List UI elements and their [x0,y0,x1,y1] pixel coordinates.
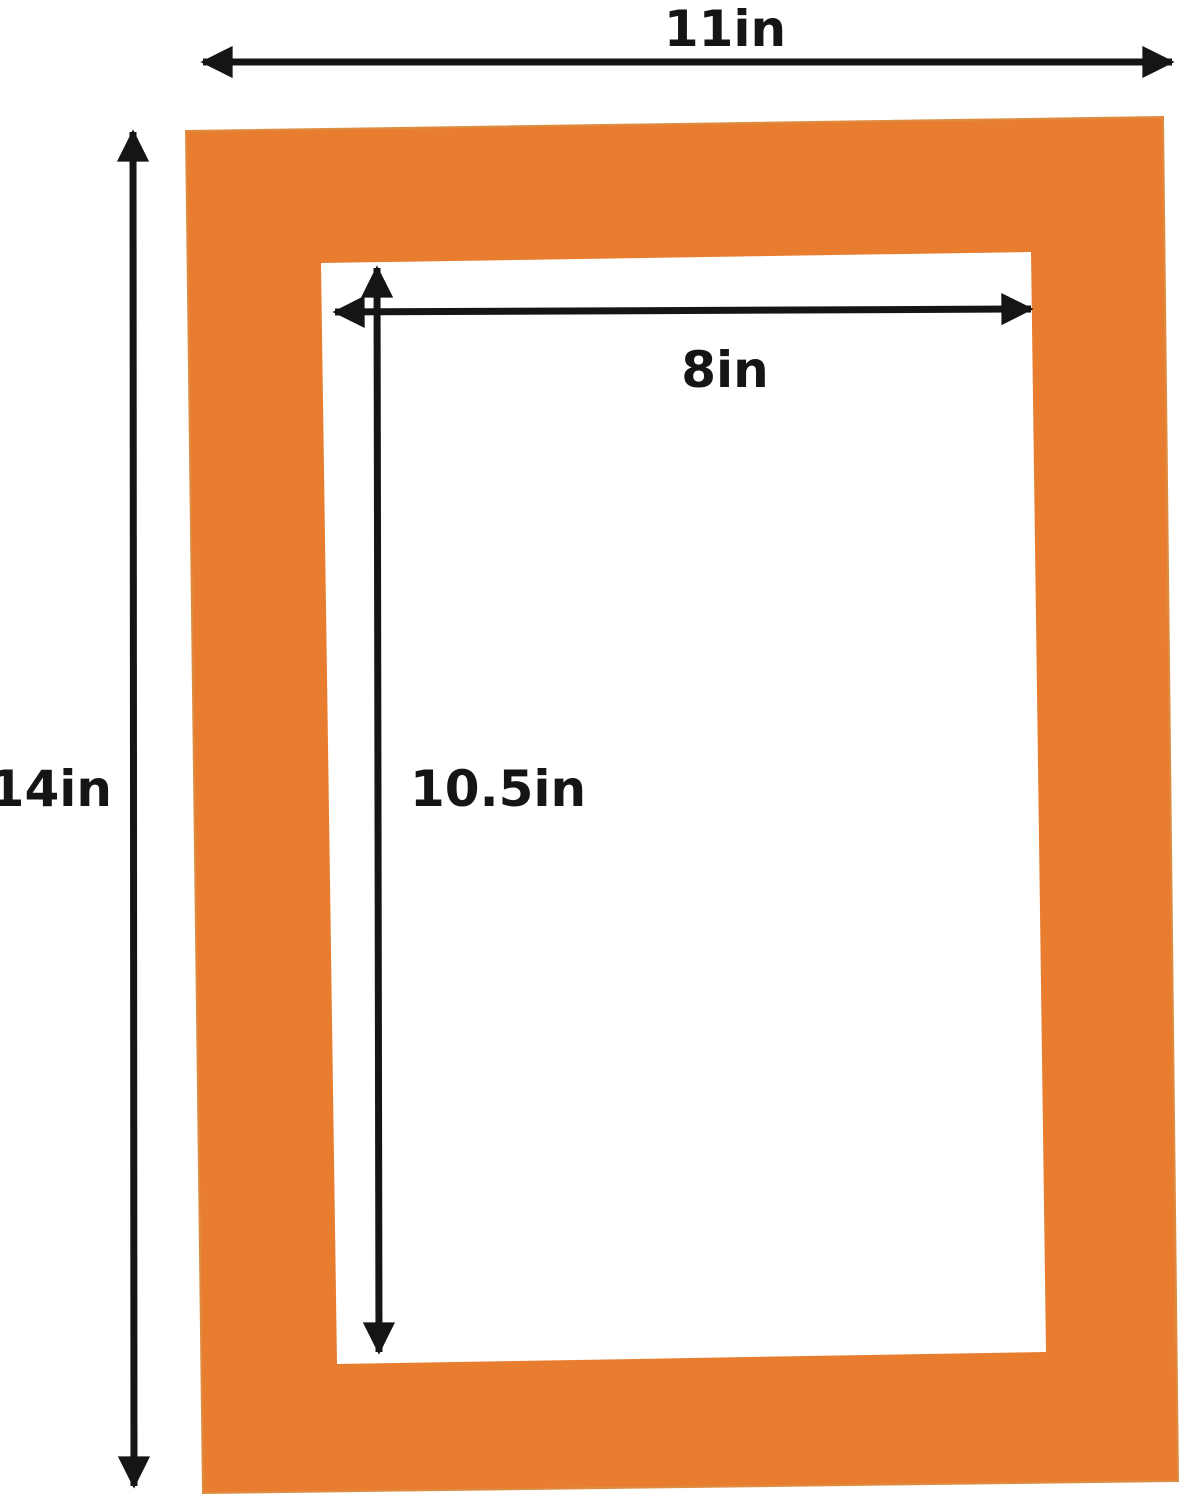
outer-width-label: 11in [664,0,786,58]
opening-width-arrow [335,309,1031,312]
opening-width-label: 8in [681,341,769,399]
outer-height-arrow [133,132,134,1486]
opening-height-label: 10.5in [410,760,586,818]
outer-height-label: 14in [0,760,112,818]
diagram-svg: 11in 14in 8in 10.5in [0,0,1185,1500]
opening-height-arrow [377,268,379,1352]
mat-dimension-diagram: 11in 14in 8in 10.5in [0,0,1185,1500]
